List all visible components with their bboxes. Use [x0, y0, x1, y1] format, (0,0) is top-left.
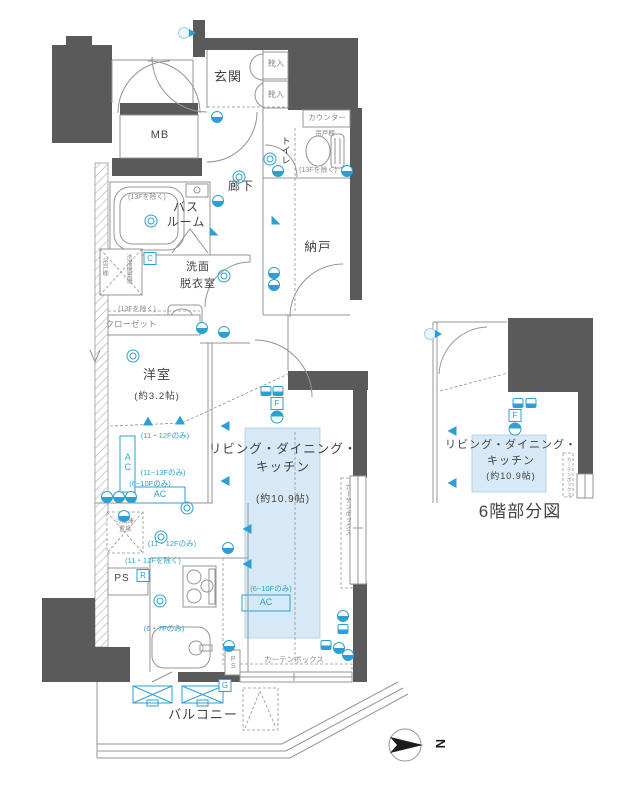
outlet-icon [342, 649, 354, 661]
speaker-icon [221, 476, 230, 486]
wall-unit-icon [526, 398, 537, 408]
outlet-icon [218, 326, 230, 338]
vent-icon [272, 216, 281, 225]
wall-unit-icon [513, 398, 524, 408]
outlet-icon [211, 111, 223, 123]
outlet-icon [196, 322, 208, 334]
compass: N [389, 729, 448, 761]
wall-unit-icon [261, 386, 272, 396]
speaker-icon [221, 421, 230, 431]
wall-unit-icon [338, 624, 349, 634]
tag-c: C [144, 252, 157, 265]
tag-g: G [219, 679, 232, 692]
doorbell-icon [424, 328, 436, 340]
outlet-icon [337, 610, 349, 622]
outlet-icon [125, 491, 137, 503]
outlet-icon [101, 491, 113, 503]
ceiling-light-icon [155, 531, 168, 544]
ceiling-light-icon [127, 350, 140, 363]
ceiling-light-icon [218, 270, 231, 283]
outlet-icon [268, 267, 280, 279]
speaker-icon [143, 417, 153, 426]
outlet-icon [113, 491, 125, 503]
ceiling-light-icon [145, 215, 158, 228]
tag-f: F [509, 409, 522, 422]
vent-icon [210, 227, 219, 236]
outlet-icon [212, 195, 224, 207]
tag-r: R [137, 569, 150, 582]
ceiling-light-icon [264, 153, 277, 166]
tag-f: F [271, 397, 284, 410]
outlet-icon [341, 165, 353, 177]
speaker-icon [243, 559, 252, 569]
compass-label: N [433, 739, 448, 748]
outlet-icon [272, 165, 284, 177]
ceiling-light-icon [154, 595, 167, 608]
floor-plan: N 玄関靴入靴入MBカウンター吊戸棚(13Fを除く)トイレ廊下納戸バスルーム(1… [0, 0, 628, 800]
circleT-icon [509, 423, 522, 436]
wall-unit-icon [273, 386, 284, 396]
speaker-icon [448, 478, 457, 488]
doorbell-icon [178, 27, 190, 39]
ceiling-light-icon [233, 171, 246, 184]
circleT-icon [271, 411, 284, 424]
wall-unit-icon [321, 640, 332, 650]
outlet-icon [268, 279, 280, 291]
speaker-icon [243, 524, 252, 534]
outlet-icon [222, 542, 234, 554]
ceiling-light-icon [181, 502, 194, 515]
speaker-icon [175, 416, 185, 425]
speaker-icon [448, 426, 457, 436]
outlet-icon [118, 510, 130, 522]
outlet-icon [223, 640, 235, 652]
